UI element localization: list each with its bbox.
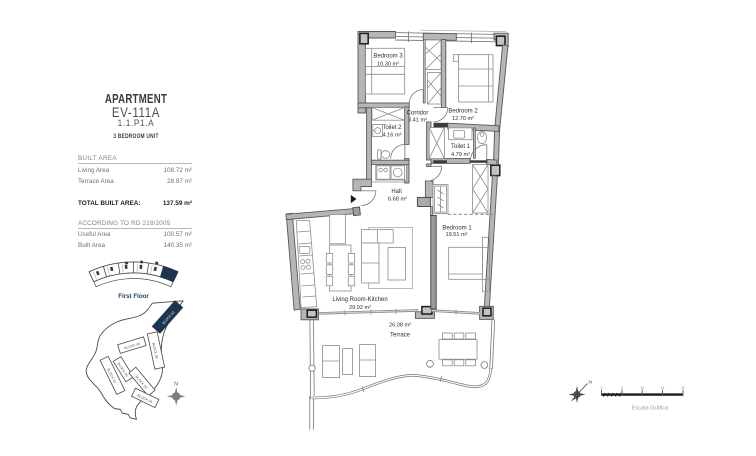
svg-text:15: 15	[661, 386, 665, 390]
svg-text:Bedroom 2: Bedroom 2	[448, 109, 478, 115]
svg-text:First Floor: First Floor	[118, 293, 149, 300]
svg-text:Bedroom 1: Bedroom 1	[442, 226, 472, 232]
svg-text:N: N	[589, 380, 593, 386]
svg-text:Living Room-Kitchen: Living Room-Kitchen	[332, 297, 387, 303]
svg-text:19.51 m²: 19.51 m²	[445, 232, 467, 238]
svg-text:Terrace: Terrace	[390, 333, 411, 339]
svg-text:Bedroom 3: Bedroom 3	[373, 54, 403, 60]
svg-text:29.92 m²: 29.92 m²	[349, 305, 371, 311]
svg-text:Toilet 2: Toilet 2	[382, 125, 402, 131]
svg-text:26.08 m²: 26.08 m²	[389, 323, 411, 329]
svg-text:0: 0	[601, 386, 603, 390]
svg-text:Toilet 1: Toilet 1	[451, 144, 471, 150]
svg-text:4.16 m²: 4.16 m²	[383, 132, 402, 138]
svg-text:5: 5	[621, 386, 623, 390]
svg-text:3.41 m²: 3.41 m²	[408, 118, 427, 124]
svg-text:20: 20	[681, 386, 685, 390]
svg-text:12.70 m²: 12.70 m²	[452, 116, 474, 122]
svg-text:10.30 m²: 10.30 m²	[377, 62, 399, 68]
svg-text:Corridor: Corridor	[407, 111, 429, 117]
svg-text:Escala Gráfica: Escala Gráfica	[632, 406, 669, 412]
svg-text:10: 10	[640, 386, 644, 390]
svg-text:N: N	[174, 382, 178, 388]
svg-text:4.79 m²: 4.79 m²	[451, 152, 470, 158]
svg-text:Hall: Hall	[391, 189, 401, 195]
svg-text:6.68 m²: 6.68 m²	[388, 196, 407, 202]
